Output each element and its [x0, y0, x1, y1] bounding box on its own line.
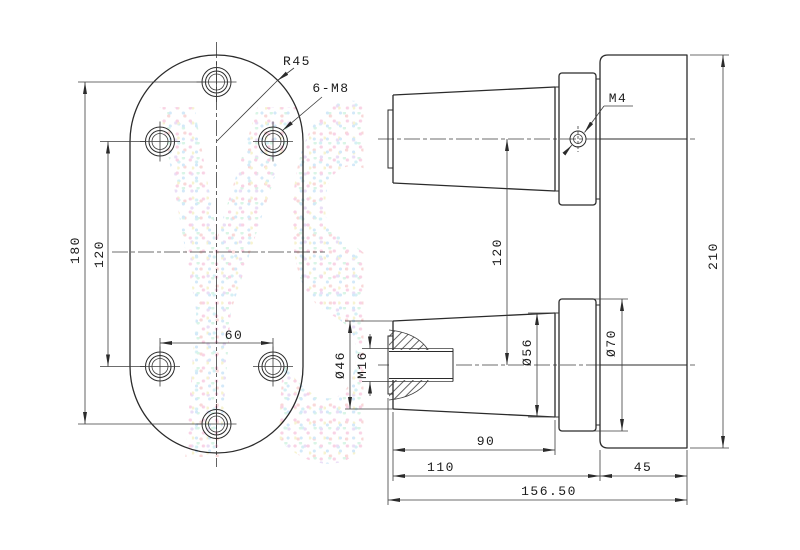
leader-r45: R45 [217, 54, 311, 141]
dim-180: 180 [68, 82, 205, 424]
dim-110: 110 [393, 450, 600, 481]
dim-156-50: 156.50 [388, 398, 687, 505]
leader-6-m8: 6-M8 [283, 81, 350, 131]
dim-120-side: 120 [490, 139, 507, 365]
drawing-canvas: 180 120 60 R45 6-M8 [0, 0, 800, 550]
dim-text-45: 45 [634, 460, 653, 475]
dim-210: 210 [690, 55, 729, 448]
dim-text-m16: M16 [355, 351, 370, 379]
label-6-m8: 6-M8 [312, 81, 349, 96]
dim-90: 90 [393, 412, 555, 481]
broken-out-section [389, 330, 453, 400]
label-m4: M4 [609, 91, 628, 106]
dim-text-60: 60 [225, 328, 244, 343]
side-view: M4 [333, 55, 729, 505]
housing-body [600, 55, 687, 448]
engineering-drawing: 180 120 60 R45 6-M8 [0, 0, 800, 550]
m4-set-screw: M4 [564, 91, 633, 154]
dim-text-120-side: 120 [490, 238, 505, 266]
bolt-hole [253, 122, 293, 162]
dim-text-120-front: 120 [92, 240, 107, 268]
dim-text-dia46: Ø46 [333, 351, 348, 379]
dim-text-180: 180 [68, 236, 83, 264]
dim-text-110: 110 [427, 460, 455, 475]
dim-text-dia70: Ø70 [604, 329, 619, 357]
dim-45: 45 [600, 460, 687, 476]
dim-text-210: 210 [706, 242, 721, 270]
dim-120-front: 120 [92, 142, 146, 367]
label-r45: R45 [283, 54, 311, 69]
dim-text-dia56: Ø56 [520, 338, 535, 366]
front-view: 180 120 60 R45 6-M8 [68, 42, 350, 467]
dim-text-90: 90 [477, 434, 496, 449]
dim-text-156-50: 156.50 [521, 484, 577, 499]
